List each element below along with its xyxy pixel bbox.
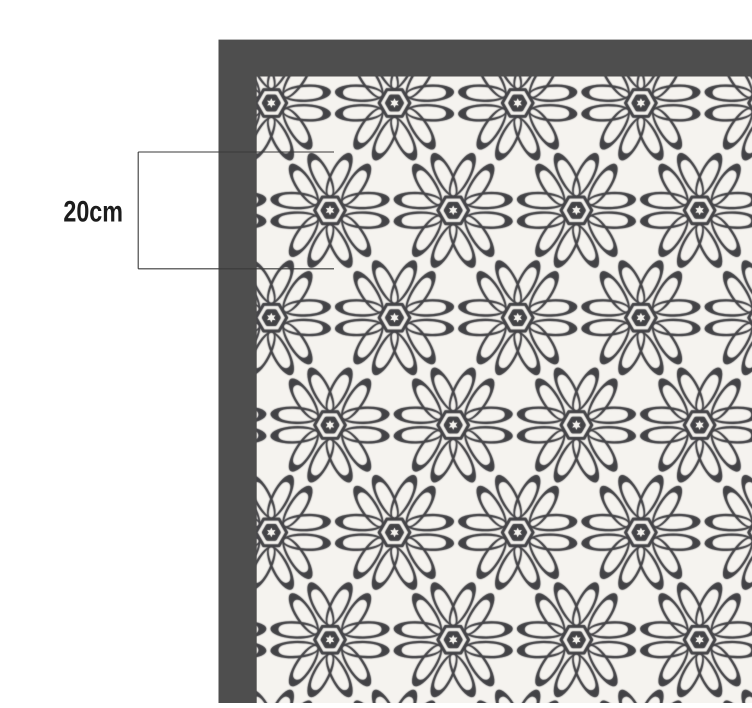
svg-text:20cm: 20cm xyxy=(63,195,123,228)
